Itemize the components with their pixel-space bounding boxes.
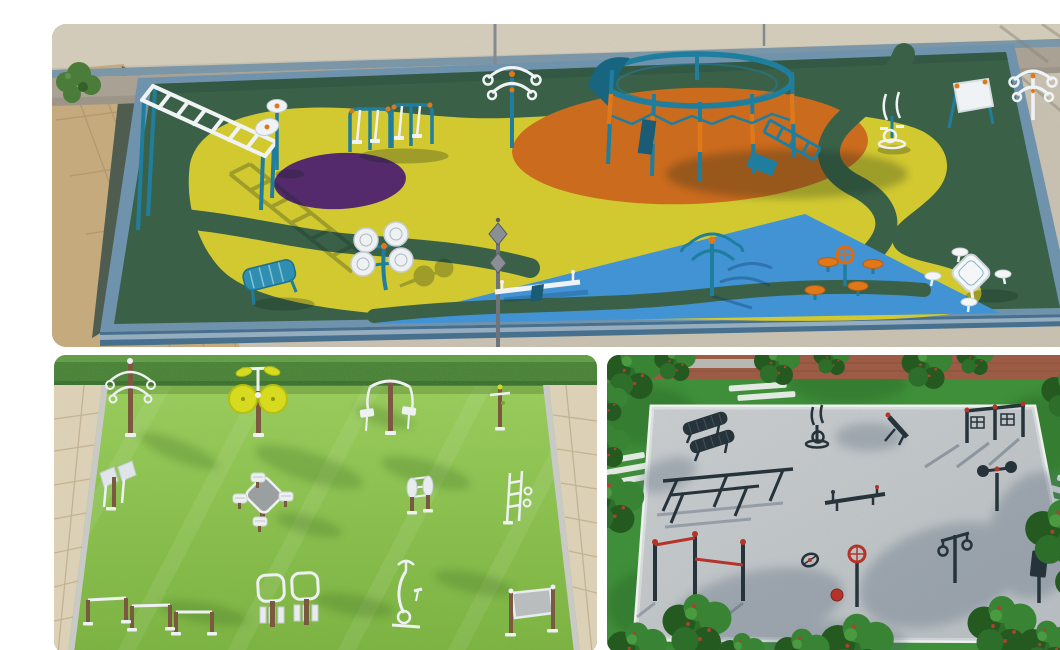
gravel-workout-render [607, 355, 1060, 650]
playfield-surface [99, 44, 1060, 346]
epdm-playground-render [52, 24, 1060, 347]
render-collage [0, 0, 1060, 650]
panel-gravel-workout [607, 355, 1060, 650]
panel-epdm-playground [52, 24, 1060, 347]
grass-gym-render [54, 355, 597, 650]
panel-grass-gym [54, 355, 597, 650]
